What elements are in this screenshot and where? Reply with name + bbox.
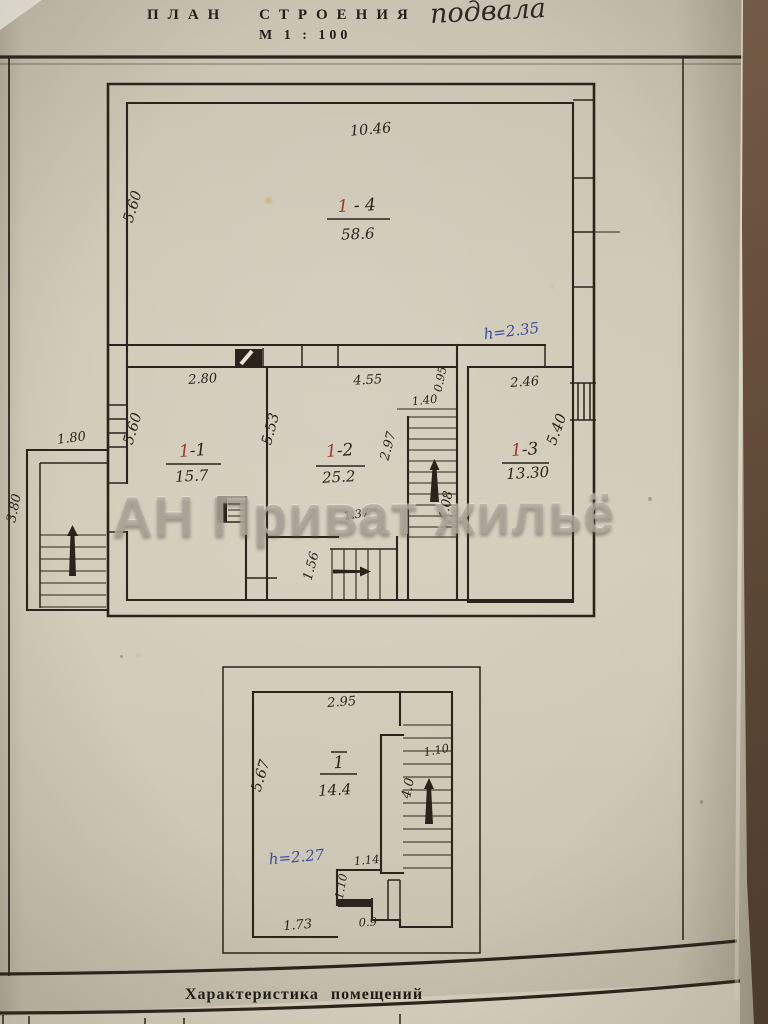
- dimension-label: 2.95: [326, 694, 357, 711]
- table-caption: Характеристика помещений: [185, 986, 423, 1004]
- plan-title: ПЛАН СТРОЕНИЯ: [147, 7, 417, 24]
- height-note: h=2.27: [268, 846, 325, 869]
- dimension-label: 0.9: [358, 915, 377, 930]
- dimension-label: 2.97: [377, 429, 399, 463]
- dimension-label: 1.80: [56, 429, 87, 447]
- dimension-label: 4.0: [399, 777, 418, 801]
- dimension-label: 1.56: [301, 550, 323, 582]
- paper-stain: [263, 196, 274, 205]
- room-number: 1: [333, 753, 345, 774]
- dimension-label: 0.95: [431, 365, 450, 393]
- paper-corner: [0, 0, 42, 30]
- paper-speck: [700, 800, 703, 804]
- room-number: 1-2: [325, 440, 354, 462]
- lower-plan-walls: [223, 667, 480, 953]
- dimension-label: 4.55: [352, 372, 383, 389]
- dimension-label: 1.14: [353, 852, 380, 868]
- scanned-basement-plan-photo: 10.465.601 - 458.6h=2.352.804.550.952.46…: [0, 0, 768, 1024]
- dimension-label: 5.40: [544, 412, 570, 448]
- dimension-label: 1.40: [411, 392, 438, 409]
- dimension-label: 2.46: [509, 374, 540, 391]
- room-area: 14.4: [318, 780, 352, 800]
- agency-watermark: АН Приват жильё: [112, 480, 712, 549]
- dimension-label: 3.80: [4, 493, 25, 524]
- dimension-label: 1.73: [283, 917, 313, 934]
- dimension-label: 5.60: [121, 189, 146, 225]
- room-number: 1 - 4: [337, 195, 376, 217]
- height-note: h=2.35: [483, 319, 540, 344]
- dimension-label: 2.80: [187, 371, 218, 388]
- dimension-label: 5.60: [121, 411, 146, 447]
- lower-plan-stair-arrow: [424, 778, 434, 824]
- room-area: 58.6: [341, 224, 375, 243]
- dimension-label: 1.10: [332, 872, 350, 900]
- plan-scale: М 1 : 100: [259, 28, 351, 44]
- dimension-label: 10.46: [349, 120, 392, 140]
- dimension-label: 5.53: [259, 411, 283, 446]
- paper-speck: [648, 497, 652, 501]
- dimension-label: 1.10: [422, 741, 450, 759]
- room-number: 1-1: [178, 440, 207, 462]
- paper-speck: [120, 655, 123, 658]
- room-number: 1-3: [510, 439, 539, 461]
